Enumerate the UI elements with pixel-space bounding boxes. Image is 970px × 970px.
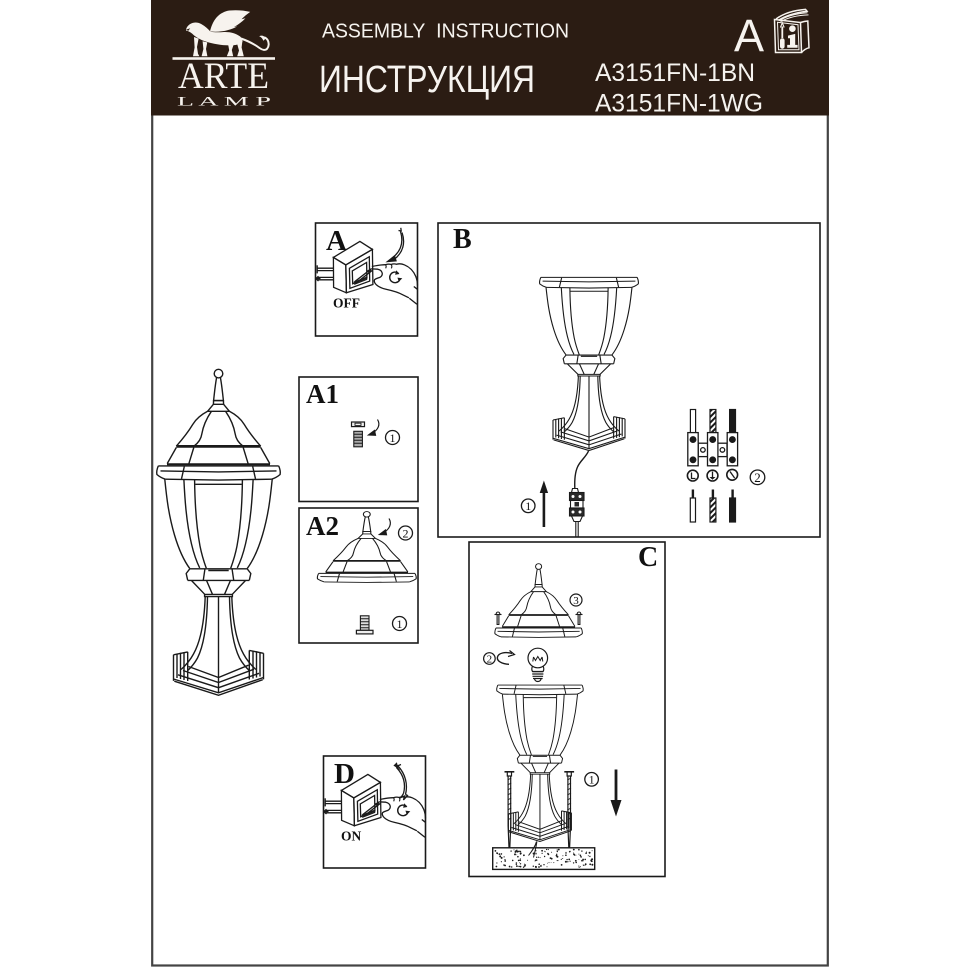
svg-text:OFF: OFF [333, 296, 360, 311]
svg-text:A3151FN-1BN: A3151FN-1BN [595, 59, 755, 87]
svg-text:ARTE: ARTE [178, 56, 269, 97]
svg-text:ON: ON [341, 829, 362, 844]
svg-text:C: C [638, 542, 658, 573]
svg-text:B: B [453, 224, 472, 255]
svg-text:1: 1 [397, 617, 403, 631]
svg-text:ИНСТРУКЦИЯ: ИНСТРУКЦИЯ [319, 59, 535, 101]
svg-text:D: D [334, 758, 355, 790]
svg-text:1: 1 [390, 431, 396, 445]
svg-text:A2: A2 [306, 511, 339, 541]
svg-text:A3151FN-1WG: A3151FN-1WG [595, 90, 763, 118]
svg-text:L A M P: L A M P [177, 94, 271, 109]
svg-text:3: 3 [573, 595, 579, 607]
svg-text:A1: A1 [306, 379, 339, 409]
svg-text:2: 2 [487, 653, 493, 665]
svg-text:A: A [734, 10, 764, 61]
svg-text:1: 1 [589, 773, 595, 787]
svg-text:2: 2 [403, 526, 409, 540]
svg-text:A: A [326, 225, 347, 257]
svg-text:ASSEMBLY INSTRUCTION: ASSEMBLY INSTRUCTION [322, 20, 569, 43]
svg-text:1: 1 [525, 499, 531, 513]
svg-text:2: 2 [754, 470, 761, 485]
